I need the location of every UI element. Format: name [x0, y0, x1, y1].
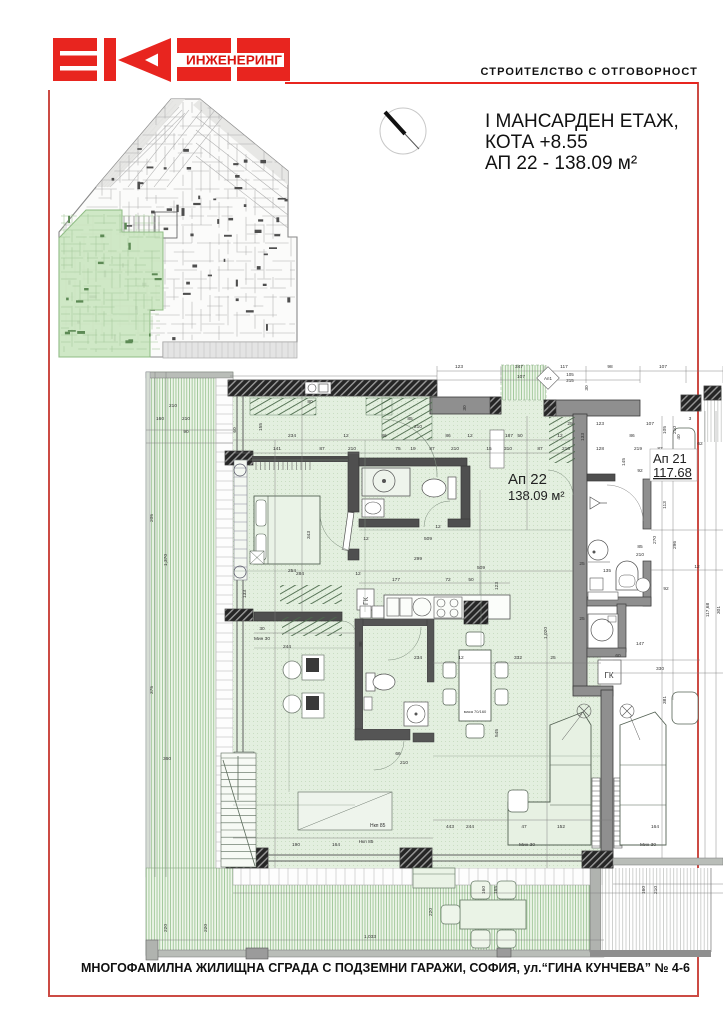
svg-text:105: 105 [662, 426, 668, 434]
svg-text:107: 107 [659, 364, 667, 370]
svg-text:86: 86 [381, 433, 387, 439]
svg-text:381: 381 [662, 696, 668, 704]
svg-text:299: 299 [414, 556, 422, 562]
svg-text:25: 25 [550, 655, 556, 661]
svg-text:92: 92 [637, 468, 643, 474]
svg-text:128: 128 [596, 446, 604, 452]
svg-text:117.68: 117.68 [653, 465, 692, 480]
svg-text:205: 205 [149, 514, 155, 522]
svg-text:310: 310 [504, 446, 512, 452]
svg-text:50: 50 [517, 433, 523, 439]
svg-text:215: 215 [566, 378, 574, 383]
svg-text:113: 113 [662, 501, 668, 509]
svg-text:87: 87 [319, 446, 325, 452]
svg-text:210: 210 [414, 424, 422, 430]
svg-text:12: 12 [458, 655, 464, 661]
svg-text:138.09 м²: 138.09 м² [508, 488, 565, 503]
svg-text:62: 62 [697, 441, 703, 447]
svg-text:220: 220 [163, 924, 169, 932]
svg-text:75: 75 [395, 446, 401, 452]
svg-text:Мин 30: Мин 30 [640, 842, 656, 848]
svg-text:160: 160 [641, 886, 647, 894]
svg-text:145: 145 [621, 458, 627, 466]
svg-text:86: 86 [445, 433, 451, 439]
svg-text:155: 155 [258, 423, 264, 431]
svg-text:509: 509 [477, 565, 485, 571]
svg-text:Мин 30: Мин 30 [519, 842, 535, 848]
svg-text:25: 25 [567, 421, 573, 427]
svg-text:164: 164 [332, 842, 340, 848]
svg-text:244: 244 [466, 824, 474, 830]
svg-text:343: 343 [306, 531, 312, 539]
svg-text:234: 234 [288, 433, 296, 439]
svg-text:85: 85 [407, 416, 413, 422]
svg-text:187: 187 [505, 433, 513, 439]
svg-text:210: 210 [653, 886, 659, 894]
svg-text:509: 509 [424, 536, 432, 542]
svg-text:12: 12 [363, 536, 369, 542]
svg-text:301: 301 [716, 606, 722, 614]
svg-text:117: 117 [560, 364, 568, 370]
svg-text:25: 25 [579, 616, 585, 622]
svg-text:1,033: 1,033 [364, 934, 376, 940]
svg-text:1,370: 1,370 [163, 554, 169, 566]
svg-text:360: 360 [163, 756, 171, 762]
svg-text:90: 90 [183, 429, 189, 435]
svg-text:Ап1: Ап1 [544, 376, 552, 381]
svg-text:25: 25 [579, 561, 585, 567]
svg-text:123: 123 [596, 421, 604, 427]
svg-text:160: 160 [156, 416, 164, 422]
svg-text:190: 190 [292, 842, 300, 848]
svg-text:123: 123 [455, 364, 463, 370]
svg-text:12: 12 [343, 433, 349, 439]
svg-text:210: 210 [182, 416, 190, 422]
svg-text:Ап 21: Ап 21 [653, 451, 687, 466]
svg-text:12: 12 [435, 524, 441, 530]
svg-text:284: 284 [296, 571, 304, 577]
svg-text:135: 135 [603, 568, 611, 574]
svg-text:47: 47 [521, 824, 527, 830]
svg-text:ГК: ГК [363, 596, 370, 605]
svg-text:ГК: ГК [605, 671, 614, 680]
svg-text:220: 220 [428, 908, 434, 916]
svg-text:234: 234 [414, 655, 422, 661]
svg-text:332: 332 [514, 655, 522, 661]
svg-text:86: 86 [629, 433, 635, 439]
svg-text:210: 210 [672, 426, 678, 434]
svg-text:Ап 22: Ап 22 [508, 471, 547, 488]
svg-text:87: 87 [537, 446, 543, 452]
svg-text:210: 210 [169, 403, 177, 409]
svg-text:296: 296 [672, 541, 678, 549]
svg-text:107: 107 [646, 421, 654, 427]
svg-text:Нкп 85: Нкп 85 [359, 839, 374, 845]
svg-text:210: 210 [400, 760, 408, 766]
svg-text:75: 75 [545, 404, 551, 410]
svg-text:12: 12 [694, 564, 700, 570]
svg-text:141: 141 [273, 446, 281, 452]
svg-text:443: 443 [446, 824, 454, 830]
svg-text:210: 210 [348, 446, 356, 452]
svg-text:87: 87 [429, 446, 435, 452]
svg-text:50: 50 [468, 577, 474, 583]
svg-text:147: 147 [636, 641, 644, 647]
svg-text:117,68: 117,68 [705, 603, 711, 618]
svg-text:220: 220 [203, 924, 209, 932]
svg-text:270: 270 [652, 536, 658, 544]
svg-text:164: 164 [651, 824, 659, 830]
svg-text:152: 152 [557, 824, 565, 830]
svg-text:19: 19 [410, 446, 416, 452]
svg-text:60: 60 [615, 653, 621, 659]
svg-text:12: 12 [467, 433, 473, 439]
svg-text:133: 133 [242, 590, 248, 598]
svg-text:210: 210 [451, 446, 459, 452]
svg-text:30: 30 [259, 626, 265, 632]
svg-text:107: 107 [517, 374, 525, 380]
svg-text:12: 12 [355, 571, 361, 577]
svg-text:219: 219 [634, 446, 642, 452]
svg-text:123: 123 [494, 582, 500, 590]
svg-text:105: 105 [566, 372, 574, 377]
svg-text:30: 30 [462, 405, 468, 411]
svg-text:12: 12 [557, 433, 563, 439]
svg-text:165: 165 [493, 886, 499, 894]
svg-text:347: 347 [515, 364, 523, 370]
svg-text:85: 85 [637, 544, 643, 550]
svg-text:160: 160 [481, 886, 487, 894]
svg-text:80: 80 [307, 399, 313, 405]
svg-text:177: 177 [392, 577, 400, 583]
svg-text:545: 545 [494, 729, 500, 737]
svg-text:1,020: 1,020 [543, 627, 549, 639]
svg-text:72: 72 [445, 577, 451, 583]
svg-text:92: 92 [663, 586, 669, 592]
svg-text:375: 375 [149, 686, 155, 694]
svg-text:86: 86 [358, 641, 364, 647]
svg-text:210: 210 [562, 446, 570, 452]
svg-text:3: 3 [689, 416, 692, 422]
svg-text:маса 70/160: маса 70/160 [464, 709, 487, 714]
svg-text:133: 133 [580, 433, 586, 441]
svg-text:60: 60 [250, 387, 256, 393]
svg-text:244: 244 [283, 644, 291, 650]
svg-text:210: 210 [636, 552, 644, 558]
svg-text:Нкп 85: Нкп 85 [370, 823, 386, 829]
svg-text:66: 66 [395, 751, 401, 757]
svg-text:60: 60 [232, 427, 238, 433]
svg-text:Мин 30: Мин 30 [254, 636, 270, 642]
svg-text:30: 30 [584, 385, 590, 391]
svg-text:15: 15 [486, 446, 492, 452]
svg-text:98: 98 [607, 364, 613, 370]
svg-text:330: 330 [656, 666, 664, 672]
